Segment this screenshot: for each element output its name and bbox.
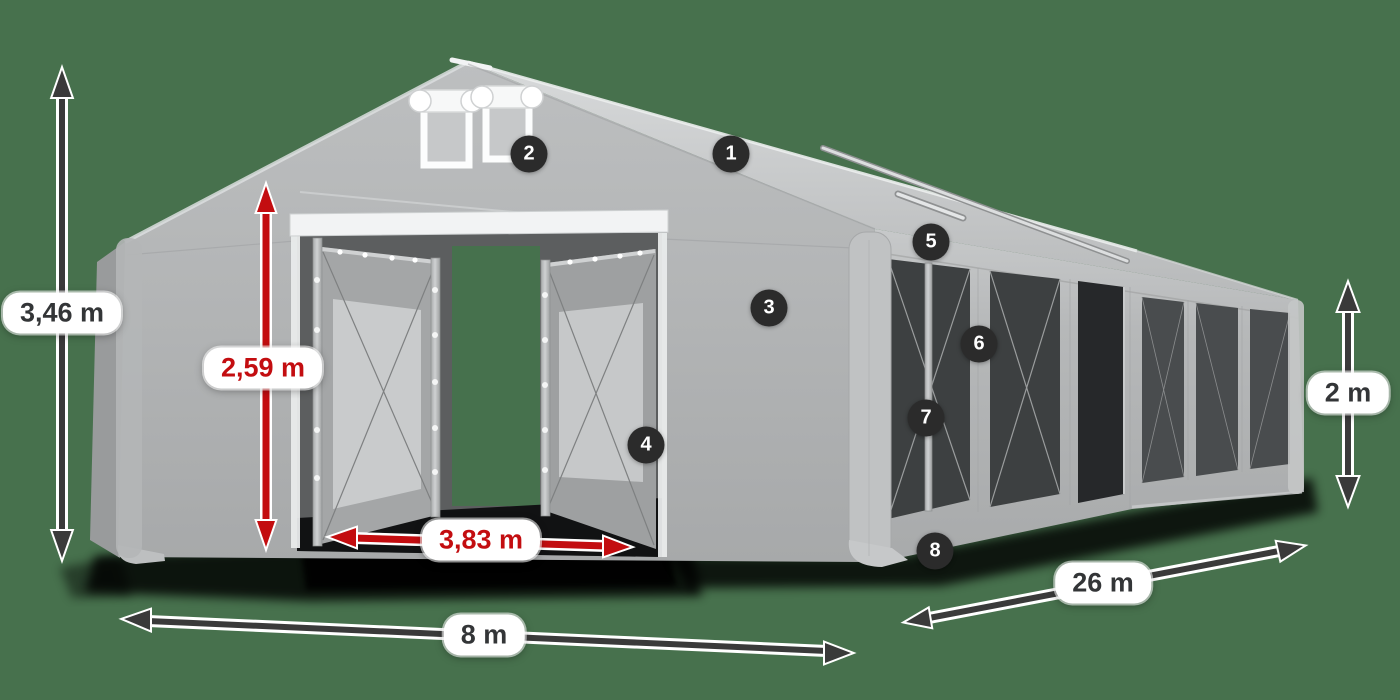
entrance-jamb-left [291,233,300,548]
see-through-gap [452,246,540,506]
marker-badge-8: 8 [917,533,954,570]
marker-badge-6: 6 [961,326,998,363]
side-opening-2 [990,271,1060,507]
side-opening-1 [888,259,970,519]
dimension-label-entrance-height: 2,59 m [204,347,322,388]
side-window-panels [1142,297,1290,483]
marker-badge-7: 7 [908,400,945,437]
dimension-label-gable-width: 8 m [444,614,525,655]
tent-product-illustration: 3,46 m 2,59 m 3,83 m 8 m 26 m 2 m 1 2 3 … [0,0,1400,700]
dimension-label-side-height: 2 m [1308,372,1389,413]
dimension-label-total-height: 3,46 m [3,292,121,333]
left-corner-post [116,238,142,558]
marker-badge-1: 1 [713,136,750,173]
entrance-door-right [541,249,656,549]
marker-badge-3: 3 [751,290,788,327]
marker-badge-5: 5 [913,224,950,261]
entrance-door-left [313,238,440,546]
marker-badge-2: 2 [511,136,548,173]
entrance-jamb-right [658,233,667,557]
dimension-label-length: 26 m [1055,562,1151,603]
dimension-label-entrance-width: 3,83 m [422,519,540,560]
marker-badge-4: 4 [628,427,665,464]
entrance [290,210,668,557]
rear-corner [1288,300,1304,494]
side-doorway [1078,281,1124,503]
entrance-lintel [290,210,668,236]
